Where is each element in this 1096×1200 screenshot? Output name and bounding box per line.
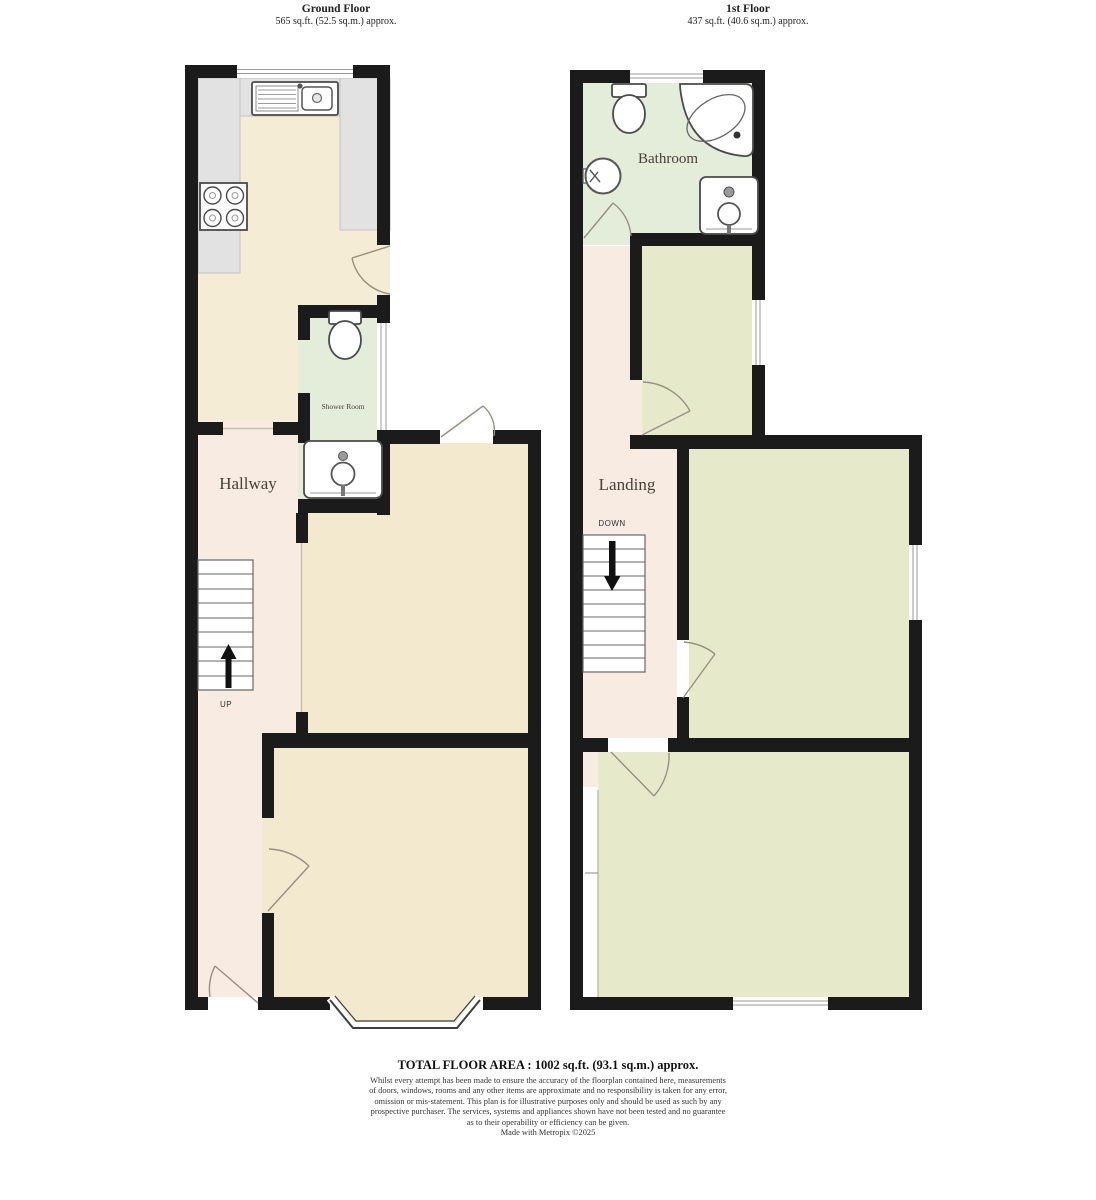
ground-floor-plan: Ground Floor 565 sq.ft. (52.5 sq.m.) app… xyxy=(185,3,541,1028)
footer: TOTAL FLOOR AREA : 1002 sq.ft. (93.1 sq.… xyxy=(369,1058,727,1137)
basin-icon-first xyxy=(700,177,758,234)
bathroom-window xyxy=(630,70,703,83)
floorplan-page: Ground Floor 565 sq.ft. (52.5 sq.m.) app… xyxy=(0,0,1096,1200)
hallway-label: Hallway xyxy=(219,474,277,493)
shower-room-label: Shower Room xyxy=(321,402,364,411)
basin-icon-ground xyxy=(304,441,382,498)
total-floor-area: TOTAL FLOOR AREA : 1002 sq.ft. (93.1 sq.… xyxy=(398,1058,699,1072)
disclaimer-line-1: Whilst every attempt has been made to en… xyxy=(370,1076,726,1085)
up-arrow-icon xyxy=(226,656,232,688)
down-label: DOWN xyxy=(598,519,625,528)
bedroom-two-window xyxy=(733,997,828,1010)
up-label: UP xyxy=(220,700,232,709)
kitchen-window xyxy=(237,65,353,78)
landing-label: Landing xyxy=(599,475,656,494)
down-arrow-icon xyxy=(609,541,616,577)
front-room-floor xyxy=(262,748,528,997)
bedroom-two-side-window-recess xyxy=(583,787,598,997)
bedroom-one-floor xyxy=(689,449,909,738)
first-floor-title: 1st Floor xyxy=(726,3,770,15)
kitchen-counter-left xyxy=(198,78,240,273)
hob-icon xyxy=(200,183,247,230)
rear-bedroom-floor xyxy=(642,245,752,437)
disclaimer-line-2: of doors, windows, rooms and any other i… xyxy=(369,1086,727,1095)
staircase-up xyxy=(198,560,253,690)
ground-floor-title: Ground Floor xyxy=(302,3,370,15)
disclaimer-line-5: as to their operability or efficiency ca… xyxy=(467,1118,629,1127)
toilet-icon-ground xyxy=(329,311,361,359)
bedroom-two-floor xyxy=(583,752,909,997)
toilet-icon-first xyxy=(612,84,646,133)
rear-bedroom-window xyxy=(752,300,765,365)
disclaimer-line-3: omission or mis-statement. This plan is … xyxy=(374,1097,722,1106)
shower-room-window xyxy=(377,323,390,430)
bedroom-one-window xyxy=(909,545,922,620)
staircase-down xyxy=(583,535,645,672)
disclaimer-line-4: prospective purchaser. The services, sys… xyxy=(371,1107,726,1116)
first-floor-plan: 1st Floor 437 sq.ft. (40.6 sq.m.) approx… xyxy=(570,3,922,1010)
bedroom-two-corner xyxy=(583,752,598,787)
first-floor-area: 437 sq.ft. (40.6 sq.m.) approx. xyxy=(687,16,808,27)
ground-floor-area: 565 sq.ft. (52.5 sq.m.) approx. xyxy=(275,16,396,27)
kitchen-sink-icon xyxy=(252,82,338,115)
made-with-line: Made with Metropix ©2025 xyxy=(501,1128,596,1137)
bathroom-label: Bathroom xyxy=(638,151,698,167)
